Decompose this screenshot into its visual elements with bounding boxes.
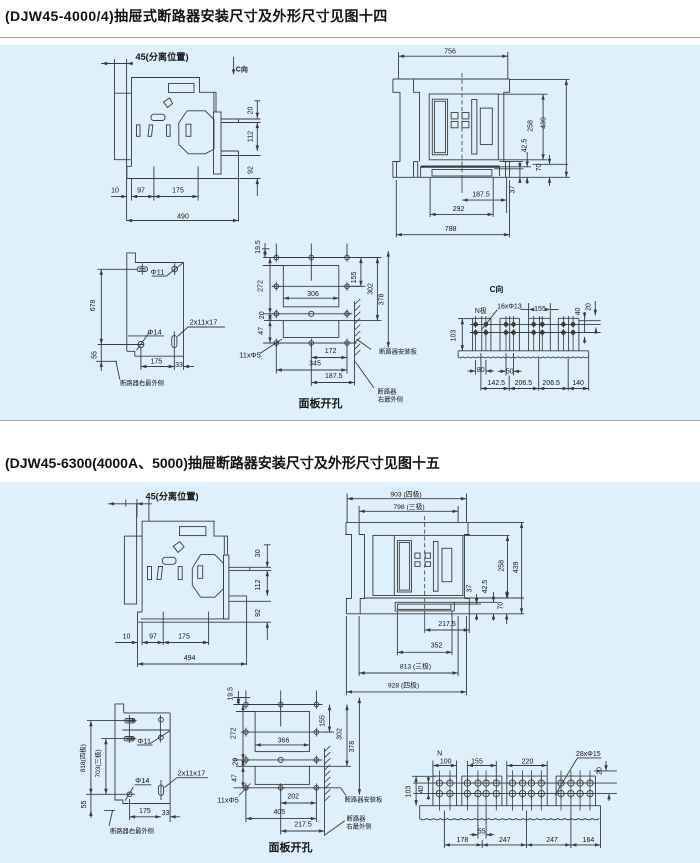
svg-text:164: 164 (583, 837, 595, 844)
svg-text:756: 756 (444, 49, 456, 56)
svg-text:175: 175 (150, 358, 162, 365)
svg-text:C向: C向 (236, 64, 248, 73)
svg-text:右最外侧: 右最外侧 (378, 394, 403, 403)
svg-text:20: 20 (248, 107, 255, 115)
svg-text:70: 70 (497, 602, 504, 610)
svg-text:55: 55 (81, 801, 88, 809)
svg-text:352: 352 (431, 642, 443, 649)
svg-text:112: 112 (248, 131, 255, 142)
svg-text:103: 103 (405, 786, 412, 798)
svg-text:272: 272 (258, 280, 265, 292)
svg-text:103: 103 (451, 330, 458, 342)
svg-text:247: 247 (499, 837, 511, 844)
svg-text:断路器安装板: 断路器安装板 (345, 794, 383, 803)
svg-text:439: 439 (513, 561, 520, 573)
svg-text:703(三极): 703(三极) (93, 749, 102, 777)
svg-text:C向: C向 (490, 284, 504, 294)
svg-text:断路器: 断路器 (347, 814, 367, 823)
svg-text:788: 788 (445, 226, 457, 233)
svg-text:55: 55 (92, 351, 99, 359)
svg-text:2x11x17: 2x11x17 (190, 318, 218, 327)
svg-text:187.5: 187.5 (472, 192, 490, 199)
svg-text:798 (三极): 798 (三极) (393, 502, 424, 511)
svg-text:928 (四极): 928 (四极) (388, 680, 419, 689)
svg-text:92: 92 (248, 166, 255, 174)
svg-text:11xΦ5: 11xΦ5 (217, 796, 239, 805)
svg-text:50: 50 (506, 369, 514, 376)
svg-text:42.5: 42.5 (482, 580, 489, 594)
svg-text:47: 47 (232, 774, 239, 782)
svg-text:178: 178 (457, 837, 469, 844)
svg-text:155: 155 (319, 715, 326, 727)
svg-text:202: 202 (287, 794, 299, 801)
svg-text:断路器右最外侧: 断路器右最外侧 (110, 826, 154, 835)
svg-text:345: 345 (309, 361, 321, 368)
svg-text:206.5: 206.5 (515, 380, 533, 387)
svg-text:面板开孔: 面板开孔 (299, 396, 343, 410)
svg-text:247: 247 (546, 837, 558, 844)
svg-text:112: 112 (255, 579, 262, 590)
svg-text:40: 40 (575, 308, 582, 316)
svg-text:断路器右最外侧: 断路器右最外侧 (120, 378, 164, 387)
svg-text:903 (四极): 903 (四极) (390, 490, 421, 499)
svg-text:217.5: 217.5 (438, 621, 456, 628)
svg-text:断路器: 断路器 (378, 386, 398, 395)
svg-text:37: 37 (510, 186, 517, 194)
svg-text:11xΦ5: 11xΦ5 (239, 351, 261, 360)
svg-text:Φ14: Φ14 (135, 776, 149, 785)
svg-text:175: 175 (139, 808, 151, 815)
svg-text:439: 439 (541, 117, 548, 129)
svg-text:258: 258 (527, 120, 534, 132)
svg-text:42.5: 42.5 (522, 139, 529, 153)
svg-text:302: 302 (367, 283, 374, 295)
svg-text:19.5: 19.5 (227, 687, 234, 701)
svg-text:272: 272 (230, 727, 237, 739)
svg-text:306: 306 (307, 291, 319, 298)
svg-text:55: 55 (478, 828, 486, 835)
svg-text:494: 494 (184, 655, 196, 662)
svg-text:220: 220 (522, 759, 534, 766)
svg-text:20: 20 (586, 303, 593, 311)
svg-text:217.5: 217.5 (294, 821, 312, 828)
svg-text:378: 378 (349, 741, 356, 753)
svg-text:187.5: 187.5 (325, 373, 343, 380)
svg-text:175: 175 (178, 634, 190, 641)
svg-text:2x11x17: 2x11x17 (177, 768, 205, 777)
svg-text:92: 92 (255, 609, 262, 617)
svg-text:97: 97 (149, 634, 157, 641)
svg-text:175: 175 (172, 188, 184, 195)
svg-text:378: 378 (379, 293, 386, 305)
svg-text:490: 490 (177, 214, 189, 221)
svg-text:366: 366 (278, 738, 290, 745)
svg-text:20: 20 (259, 311, 266, 319)
svg-text:面板开孔: 面板开孔 (269, 840, 313, 854)
svg-text:172: 172 (325, 348, 337, 355)
svg-text:292: 292 (453, 206, 465, 213)
svg-text:678: 678 (90, 299, 97, 311)
svg-text:258: 258 (498, 560, 505, 572)
svg-text:20: 20 (597, 767, 604, 775)
svg-text:302: 302 (336, 728, 343, 740)
svg-text:N: N (437, 750, 442, 757)
svg-text:断路器安装板: 断路器安装板 (379, 347, 417, 356)
svg-text:10: 10 (111, 188, 119, 195)
svg-text:813 (三极): 813 (三极) (400, 662, 431, 671)
svg-text:818(四极): 818(四极) (78, 744, 87, 772)
svg-text:19.5: 19.5 (255, 240, 262, 254)
svg-text:N极: N极 (475, 306, 487, 315)
svg-text:405: 405 (273, 809, 285, 816)
svg-text:Φ11: Φ11 (151, 267, 165, 276)
svg-text:Φ14: Φ14 (147, 327, 161, 336)
svg-text:37: 37 (466, 585, 473, 593)
svg-text:28xΦ15: 28xΦ15 (576, 751, 601, 758)
svg-text:47: 47 (258, 327, 265, 335)
svg-text:206.5: 206.5 (542, 380, 560, 387)
svg-text:97: 97 (137, 188, 145, 195)
svg-text:33: 33 (162, 810, 170, 817)
svg-text:30: 30 (255, 549, 262, 557)
svg-text:40: 40 (418, 786, 425, 794)
svg-text:Φ11: Φ11 (137, 736, 151, 745)
svg-text:33: 33 (175, 362, 183, 369)
svg-text:16xΦ13: 16xΦ13 (497, 303, 522, 310)
svg-text:142.5: 142.5 (488, 380, 506, 387)
svg-text:155: 155 (534, 306, 546, 313)
svg-text:20: 20 (232, 758, 239, 766)
svg-text:45(分离位置): 45(分离位置) (135, 51, 188, 62)
svg-text:右最外侧: 右最外侧 (346, 821, 371, 830)
svg-text:100: 100 (440, 759, 452, 766)
svg-text:155: 155 (351, 271, 358, 283)
svg-text:45(分离位置): 45(分离位置) (145, 491, 198, 502)
svg-text:70: 70 (536, 164, 543, 172)
svg-text:140: 140 (572, 380, 584, 387)
svg-text:10: 10 (123, 634, 131, 641)
